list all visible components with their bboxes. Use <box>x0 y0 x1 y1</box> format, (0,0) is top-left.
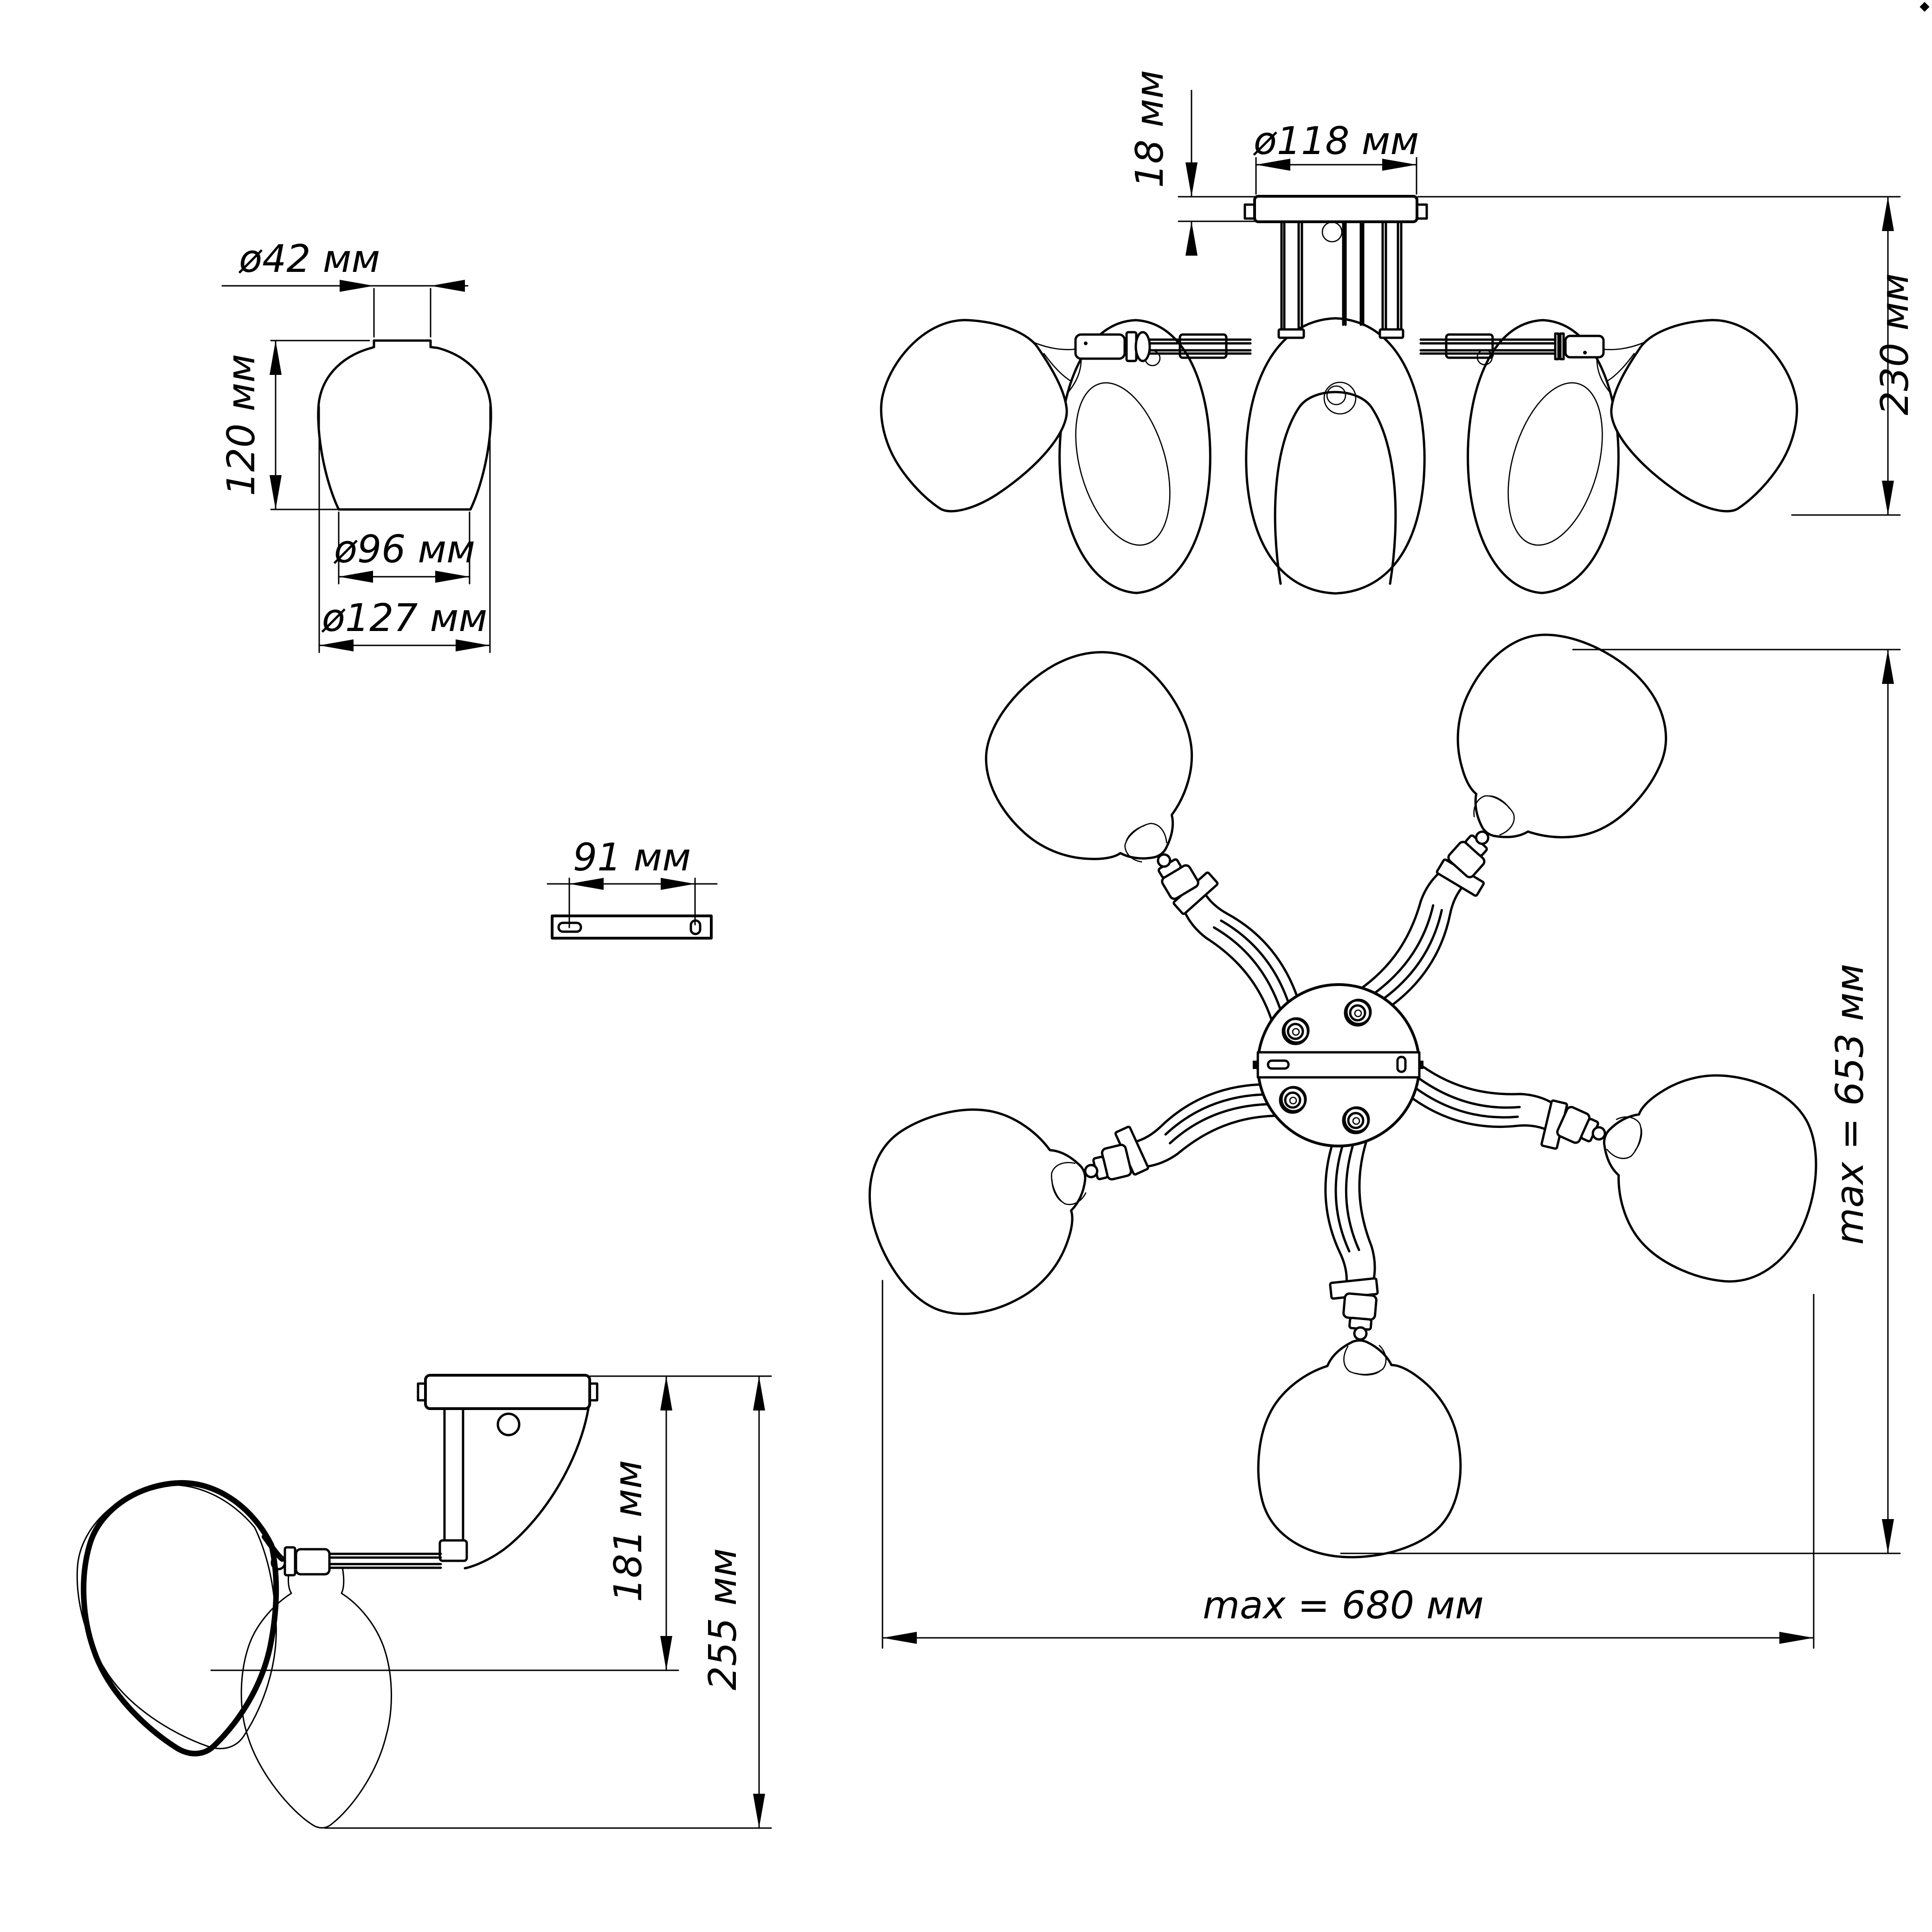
arrowhead <box>1185 221 1198 256</box>
dim-label-canopy-height: 18 мм <box>1128 70 1172 188</box>
top-arm-right <box>1402 1052 1610 1168</box>
view-front: ø118 мм 18 мм 230 мм <box>881 70 1917 593</box>
arrowhead <box>753 1376 765 1410</box>
side-support-curve <box>465 1409 588 1568</box>
arrowhead <box>1882 650 1894 684</box>
view-shade-detail: ø42 мм 120 мм ø96 мм ø127 мм <box>219 237 491 652</box>
arrowhead <box>1779 1632 1814 1644</box>
arrowhead <box>456 639 490 651</box>
shade-profile <box>318 341 491 509</box>
view-side: 181 мм 255 мм <box>58 1375 771 1828</box>
arrowhead <box>1882 481 1894 515</box>
dim-label-shade-top-diameter: ø42 мм <box>238 237 380 281</box>
side-stem-block <box>440 1540 467 1561</box>
arrowhead <box>270 341 282 375</box>
view-top: max = 653 мм max = 680 мм <box>847 599 1900 1648</box>
front-shade-far-right <box>1611 320 1797 511</box>
dim-label-fixture-height: 230 мм <box>1873 273 1917 415</box>
bracket-plate <box>552 916 711 938</box>
front-canopy <box>1255 196 1417 222</box>
side-canopy <box>425 1375 590 1409</box>
arrowhead <box>339 571 373 583</box>
arrowhead <box>753 1794 765 1828</box>
arrowhead <box>1185 162 1198 197</box>
arrowhead <box>340 280 374 292</box>
top-arm-top-left <box>1146 835 1307 1030</box>
top-arm-bottom <box>1326 1137 1378 1340</box>
top-hub-bar <box>1258 1052 1419 1077</box>
side-shade-ghost-rotated <box>58 1466 306 1773</box>
technical-drawing: ø42 мм 120 мм ø96 мм ø127 мм <box>0 0 1932 1932</box>
dim-label-canopy-diameter: ø118 мм <box>1253 119 1419 163</box>
side-socket-block <box>296 1549 329 1574</box>
top-shade-right <box>1572 1041 1843 1304</box>
corner-artifact-dot <box>1919 2 1929 12</box>
arrowhead <box>882 1632 917 1644</box>
front-shade-far-left <box>881 320 1067 511</box>
top-shade-top-left <box>952 619 1243 914</box>
front-shade-center <box>1246 318 1424 593</box>
dim-label-top-max-depth: max = 653 мм <box>1828 964 1872 1245</box>
top-arm-top-right <box>1350 823 1514 1016</box>
top-shade-bottom <box>1258 1340 1461 1557</box>
dim-label-top-max-width: max = 680 мм <box>1203 1584 1484 1628</box>
side-shade-bold <box>84 1483 276 1754</box>
arrowhead <box>660 1636 672 1670</box>
top-shade-left <box>847 1076 1116 1337</box>
dim-label-side-arm-height: 181 мм <box>606 1460 650 1602</box>
side-socket-collar <box>285 1547 295 1575</box>
wire-loop <box>1322 222 1342 242</box>
arrowhead <box>431 280 465 292</box>
dim-label-side-max-height: 255 мм <box>701 1548 745 1690</box>
side-bulb-detail <box>498 1414 519 1435</box>
arrowhead <box>1882 1519 1894 1553</box>
view-bracket: 91 мм <box>547 836 717 938</box>
dim-label-shade-height: 120 мм <box>219 354 264 496</box>
arrowhead <box>435 571 470 583</box>
arrowhead <box>319 639 354 651</box>
dim-label-shade-opening-diameter: ø96 мм <box>333 528 475 572</box>
top-shade-top-right <box>1406 599 1698 893</box>
arrowhead <box>660 1376 672 1410</box>
arrowhead <box>270 475 282 509</box>
dim-label-bracket-spacing: 91 мм <box>573 836 691 880</box>
dim-label-shade-max-diameter: ø127 мм <box>321 596 487 640</box>
top-arm-left <box>1075 1075 1283 1190</box>
arrowhead <box>1882 197 1894 231</box>
